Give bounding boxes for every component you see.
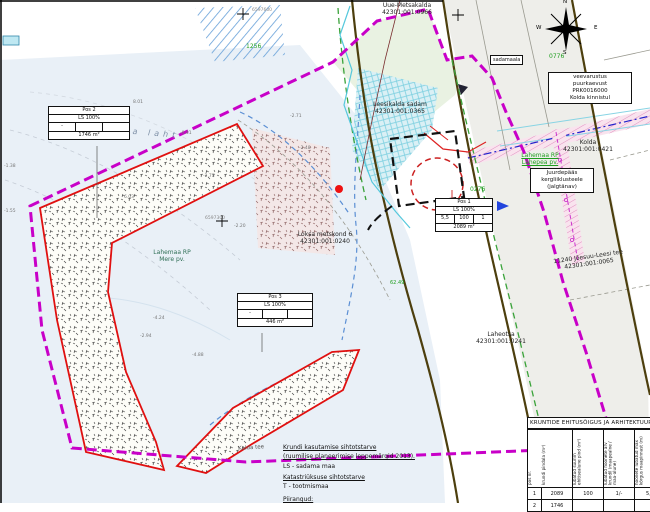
parcel-number-1256: 1256 <box>246 43 261 50</box>
table-cell: 1/- <box>604 487 635 499</box>
compass-north-label: N <box>563 0 567 5</box>
grid-coordinate-label: 6597600 <box>252 8 272 13</box>
spot-elevation: -4.24 <box>153 316 165 321</box>
building-rights-table: KRUNTIDE EHITUSÕIGUS JA ARHITEKTUURINÕUD… <box>527 417 650 512</box>
red-point-marker <box>335 185 343 193</box>
pos2-cell <box>76 123 103 131</box>
note-box-veevarustus: veevarustus puurkaevust PRK0016000 Kolda… <box>548 72 632 104</box>
column-header: pos nr. <box>528 429 542 487</box>
pos2-cell: - <box>49 123 76 131</box>
table-cell <box>604 499 635 511</box>
column-header: krundi pindala (m²) <box>542 429 573 487</box>
pos2-area: 1746 m² <box>49 132 129 139</box>
pos2-rights-box: Pos 2 LS 100% - 1746 m² <box>48 106 130 140</box>
spot-elevation: 6.03 <box>124 195 134 200</box>
pos1-cell: 5,5 <box>436 215 455 223</box>
pos1-cell: 1 <box>474 215 492 223</box>
pos3-cell <box>263 310 288 318</box>
parcel-label-laheotsa: Laheotsa 42301:001:0241 <box>470 331 532 345</box>
spot-elevation: -2.48 <box>299 146 311 151</box>
table-cell: 2089 <box>542 487 573 499</box>
parcel-label-uue-metsakalda: Uue-Metsakalda 42301:001:0966 <box>372 2 442 16</box>
protection-label-lahemaa-lahepea: Lahemaa RP Lahepea pv. <box>516 152 564 166</box>
parcel-label-leesikalda-sadam: Leesikalda sadam 42301:001:0365 <box>365 101 435 115</box>
legend-entry: T - tootmismaa <box>283 482 415 491</box>
compass-east-label: E <box>594 25 597 31</box>
note-box-juurdepaas: Juurdepääs kergliiklusteele (jalgtänav) <box>530 168 594 193</box>
spot-elevation: -2.94 <box>140 334 152 339</box>
spot-elevation: -0.41 <box>180 131 192 136</box>
note-box-sadamaala: sadamaala <box>490 55 523 65</box>
pos2-title: Pos 2 <box>49 107 129 115</box>
table-cell: 1746 <box>542 499 573 511</box>
spot-elevation: -1.38 <box>4 164 16 169</box>
parcel-number-0276: 0276 <box>470 186 485 193</box>
table-row: 1 2089 100 1/- 5,5 <box>528 487 650 499</box>
protection-label-lahemaa-mere: Lahemaa RP Mere pv. <box>150 249 194 263</box>
pos3-area: 446 m² <box>238 319 312 326</box>
pos2-use: LS 100% <box>49 115 129 123</box>
small-legend-box <box>3 36 19 45</box>
table-cell: 1 <box>528 487 542 499</box>
pos3-cell: - <box>238 310 263 318</box>
parcel-number-0776: 0776 <box>549 53 564 60</box>
column-header: hoonete lubatud max kõrgus maapinnast (m… <box>635 429 650 487</box>
parcel-label-loksa-metskond: Loksa metskond 6 42301:001:0240 <box>292 231 358 245</box>
pos3-cell <box>288 310 312 318</box>
building-rights-table-title: KRUNTIDE EHITUSÕIGUS JA ARHITEKTUURINÕUD… <box>528 418 650 429</box>
table-cell: 5,5 <box>635 487 650 499</box>
column-header: lubatud suurim ehitisealune pind (m²) <box>573 429 604 487</box>
legend-heading: Katastriüksuse sihtotstarve <box>283 473 415 482</box>
spot-elevation: 8.01 <box>133 100 143 105</box>
pos1-rights-box: Pos 1 LS 100% 5,5 100 1 2089 m² <box>435 198 493 232</box>
table-cell: 100 <box>573 487 604 499</box>
table-cell <box>573 499 604 511</box>
pos3-use: LS 100% <box>238 302 312 310</box>
pos3-rights-box: Pos 3 LS 100% - 446 m² <box>237 293 313 327</box>
legend-subheading: (ruumilise planeerimise leppemärgid 2013… <box>283 452 415 461</box>
spot-elevation: -4.88 <box>192 353 204 358</box>
detail-plan-drawing: { "colors": { "plan_boundary": "#c800c8"… <box>0 0 650 503</box>
legend-heading: Krundi kasutamise sihtotstarve <box>283 443 415 452</box>
pos1-cell: 100 <box>455 215 474 223</box>
pos1-title: Pos 1 <box>436 199 492 207</box>
pos2-cell <box>103 123 129 131</box>
table-cell: 2 <box>528 499 542 511</box>
parcel-label-kolda: Kolda 42301:001:0421 <box>558 139 618 153</box>
grid-coordinate-label: 6597300 <box>205 216 225 221</box>
legend-heading: Piirangud: <box>283 495 415 504</box>
legend-entry: LS - sadama maa <box>283 462 415 471</box>
spot-elevation: -2.73 <box>203 174 215 179</box>
table-cell <box>635 499 650 511</box>
dimension-label: 62.49 <box>390 280 404 286</box>
pos3-title: Pos 3 <box>238 294 312 302</box>
compass-south-label: S <box>563 50 567 56</box>
legend-block: Krundi kasutamise sihtotstarve (ruumilis… <box>283 443 415 505</box>
spot-elevation: -1.55 <box>4 209 16 214</box>
spot-elevation: -2.71 <box>290 114 302 119</box>
table-row: 2 1746 <box>528 499 650 511</box>
column-header: lubatud hoonete arv krundil (maapealne /… <box>604 429 635 487</box>
pos1-use: LS 100% <box>436 207 492 215</box>
spot-elevation: -2.20 <box>234 224 246 229</box>
compass-west-label: W <box>536 25 541 31</box>
pos1-area: 2089 m² <box>436 224 492 231</box>
